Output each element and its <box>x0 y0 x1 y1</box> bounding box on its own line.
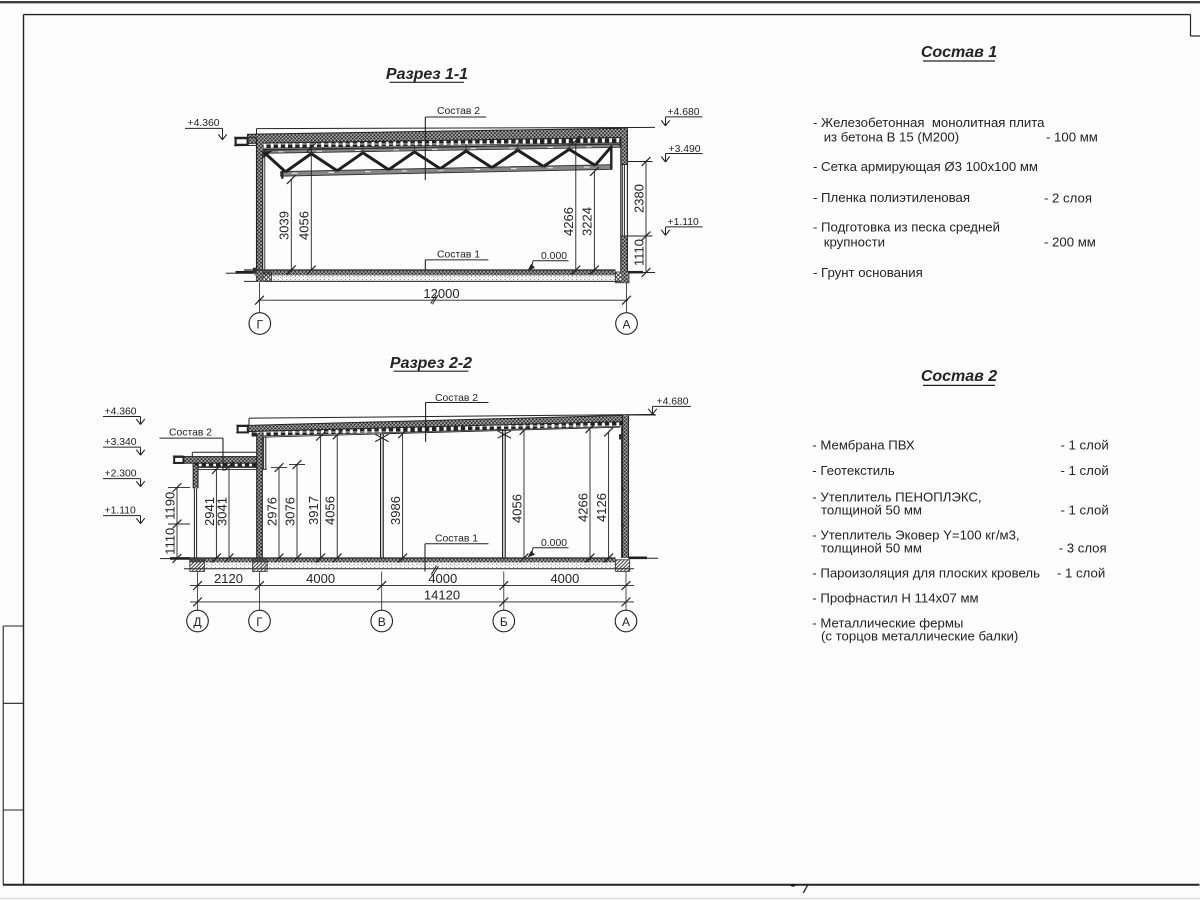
svg-text:14120: 14120 <box>424 588 460 603</box>
svg-text:Состав 2: Состав 2 <box>437 106 480 117</box>
svg-text:- 3 слоя: - 3 слоя <box>1059 540 1107 555</box>
svg-text:3986: 3986 <box>388 496 403 525</box>
svg-text:4056: 4056 <box>510 494 525 523</box>
svg-text:Г: Г <box>257 317 264 331</box>
svg-text:- 200 мм: - 200 мм <box>1044 234 1096 249</box>
svg-text:4266: 4266 <box>561 207 576 236</box>
svg-text:В: В <box>378 615 386 629</box>
svg-text:1110: 1110 <box>631 239 646 266</box>
svg-text:А: А <box>622 317 630 331</box>
svg-text:2120: 2120 <box>214 571 243 586</box>
svg-text:4056: 4056 <box>297 211 312 240</box>
svg-text:Д: Д <box>193 615 201 629</box>
svg-text:0.000: 0.000 <box>541 251 567 262</box>
svg-text:1110: 1110 <box>162 528 177 555</box>
svg-text:3224: 3224 <box>580 207 595 236</box>
svg-text:- Сетка армирующая Ø3 100х100: - Сетка армирующая Ø3 100х100 мм <box>813 159 1038 174</box>
svg-text:4056: 4056 <box>323 496 338 525</box>
svg-text:Состав 1: Состав 1 <box>435 534 478 545</box>
svg-text:12000: 12000 <box>423 286 459 301</box>
svg-text:- Подготовка из песка средней: - Подготовка из песка средней <box>813 220 1000 235</box>
svg-text:3076: 3076 <box>283 497 298 526</box>
svg-text:4000: 4000 <box>550 571 579 586</box>
svg-text:+4.360: +4.360 <box>105 406 137 417</box>
svg-text:- Профнастил Н 114х07 мм: - Профнастил Н 114х07 мм <box>812 591 978 606</box>
svg-text:Г: Г <box>256 615 263 629</box>
svg-text:- 100 мм: - 100 мм <box>1046 130 1098 145</box>
svg-text:Состав 2: Состав 2 <box>169 427 212 438</box>
svg-text:+2.300: +2.300 <box>105 468 137 479</box>
svg-text:- 1 слой: - 1 слой <box>1061 463 1109 478</box>
svg-text:+1.110: +1.110 <box>105 505 137 516</box>
svg-text:4126: 4126 <box>594 493 609 522</box>
svg-text:3039: 3039 <box>277 211 292 240</box>
svg-text:4000: 4000 <box>306 571 335 586</box>
svg-text:(с торцов металлические балки): (с торцов металлические балки) <box>821 628 1018 643</box>
svg-text:+4.360: +4.360 <box>188 118 220 129</box>
svg-text:- Пароизоляция для плоских кро: - Пароизоляция для плоских кровель <box>812 566 1040 581</box>
svg-text:4000: 4000 <box>428 571 457 586</box>
svg-text:1190: 1190 <box>162 492 177 520</box>
svg-text:Разрез 2-2: Разрез 2-2 <box>390 355 472 372</box>
svg-text:толщиной 50 мм: толщиной 50 мм <box>821 540 922 555</box>
svg-text:Б: Б <box>500 615 508 629</box>
svg-text:+3.340: +3.340 <box>105 437 137 448</box>
svg-text:- Пленка полиэтиленовая: - Пленка полиэтиленовая <box>813 190 970 205</box>
svg-text:толщиной 50 мм: толщиной 50 мм <box>821 503 922 518</box>
svg-text:0.000: 0.000 <box>541 538 567 549</box>
svg-text:Состав 1: Состав 1 <box>437 250 480 261</box>
svg-text:Состав 1: Состав 1 <box>921 44 997 61</box>
svg-text:2380: 2380 <box>631 184 646 213</box>
svg-text:- Железобетонная монолитная п: - Железобетонная монолитная плита <box>813 115 1045 130</box>
svg-text:А: А <box>622 615 630 629</box>
svg-text:- 2 слоя: - 2 слоя <box>1044 191 1092 206</box>
svg-text:3041: 3041 <box>215 497 230 526</box>
svg-text:3917: 3917 <box>306 496 321 525</box>
svg-text:Разрез 1-1: Разрез 1-1 <box>386 66 468 83</box>
svg-text:4266: 4266 <box>576 493 591 522</box>
svg-text:Состав 2: Состав 2 <box>921 368 997 385</box>
svg-text:- Геотекстиль: - Геотекстиль <box>812 463 895 478</box>
svg-text:- Мембрана ПВХ: - Мембрана ПВХ <box>812 437 915 452</box>
svg-text:- Грунт основания: - Грунт основания <box>813 265 923 280</box>
svg-text:из бетона В 15 (М200): из бетона В 15 (М200) <box>824 130 959 145</box>
svg-text:- 1 слой: - 1 слой <box>1061 503 1109 518</box>
svg-text:2976: 2976 <box>265 497 280 526</box>
svg-text:- 1 слой: - 1 слой <box>1061 437 1109 452</box>
svg-text:- 1 слой: - 1 слой <box>1057 566 1105 581</box>
svg-text:крупности: крупности <box>824 234 885 249</box>
